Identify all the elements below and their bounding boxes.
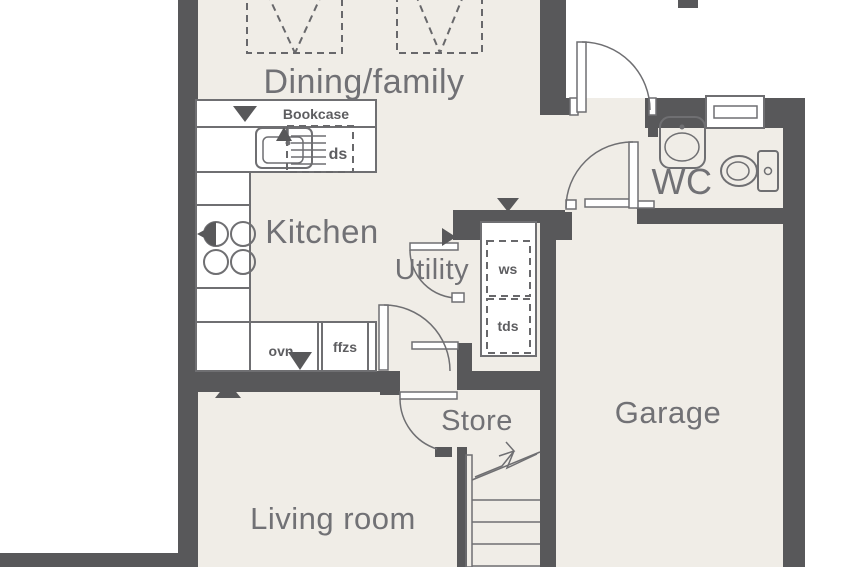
room-label-wc: WC <box>652 161 713 202</box>
room-label-dining: Dining/family <box>263 63 464 101</box>
washer-space-label: ws <box>498 261 518 277</box>
wall-wc-bottom <box>637 208 785 224</box>
room-label-utility: Utility <box>395 254 469 286</box>
wall-utility-bottom <box>457 371 556 390</box>
wall-utility-corner <box>453 210 481 240</box>
store-door-leaf <box>400 392 457 399</box>
room-label-kitchen: Kitchen <box>265 213 379 250</box>
kitchen-door-leaf <box>379 305 388 370</box>
tumble-dryer-space-label: tds <box>498 318 519 334</box>
wall-party-bottom <box>0 553 178 567</box>
oven-label: ovn <box>269 343 294 359</box>
window-icon <box>706 96 764 128</box>
room-label-garage: Garage <box>615 395 721 430</box>
utility-counter <box>481 222 536 356</box>
porch-outside <box>566 0 805 98</box>
wall-kitchen-bottom <box>178 371 384 392</box>
room-label-living: Living room <box>250 501 416 536</box>
bookcase-label: Bookcase <box>283 106 349 122</box>
wall-top-stub <box>678 0 698 8</box>
wall-store-stub <box>435 447 452 457</box>
front-door-leaf <box>577 42 586 112</box>
utility-door-leaf <box>410 243 458 250</box>
fridge-freezer-label: ffzs <box>333 339 357 355</box>
wall-wc-stub <box>648 126 658 137</box>
floor-plan: Dining/family Bookcase ds Kitchen Utilit… <box>0 0 850 567</box>
room-label-store: Store <box>441 405 513 437</box>
wall-right <box>783 98 805 567</box>
dishwasher-label: ds <box>329 146 348 163</box>
wall-hall-stub <box>380 371 400 395</box>
hall-door-leaf <box>629 142 638 208</box>
wall-dining-right <box>540 0 566 98</box>
floor-plan-svg: Dining/family Bookcase ds Kitchen Utilit… <box>0 0 850 567</box>
